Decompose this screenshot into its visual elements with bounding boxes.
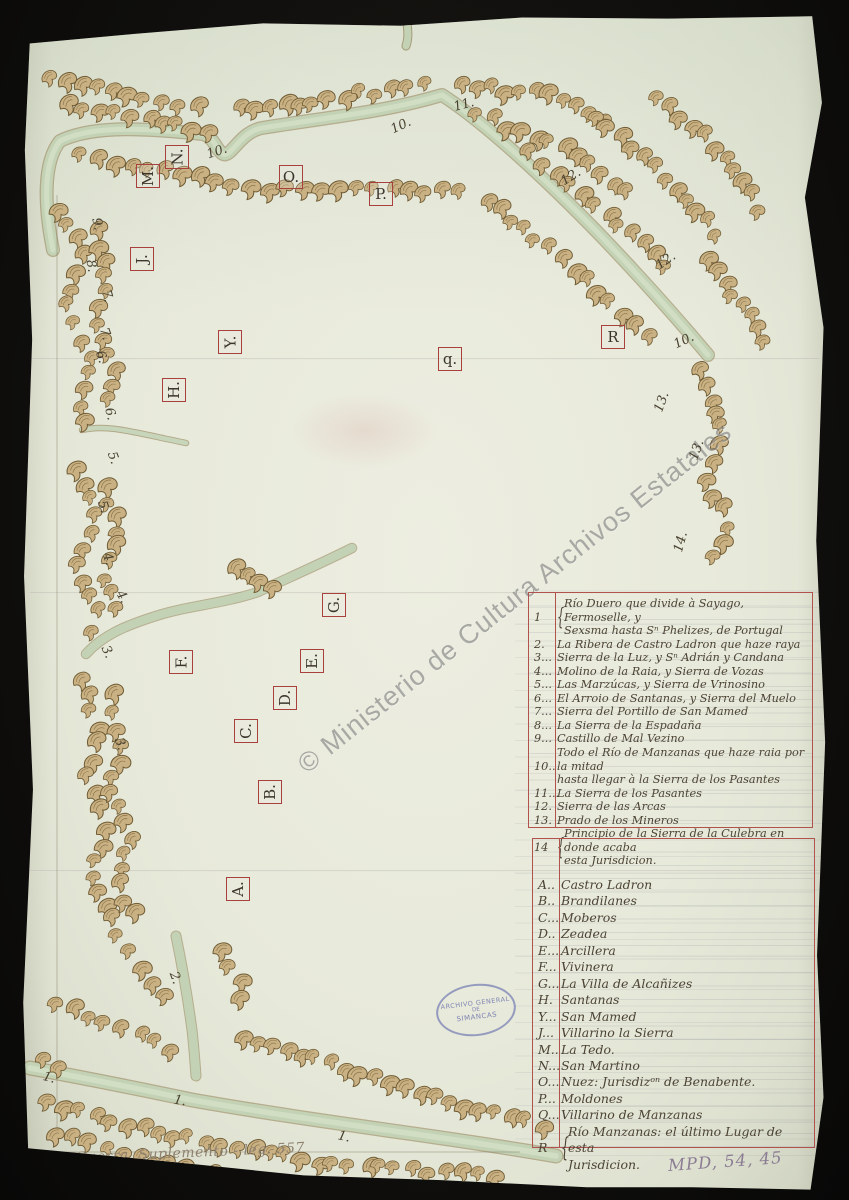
legend-item-text: Vivinera	[561, 959, 810, 975]
legend-margin-rule	[559, 839, 560, 1147]
legend-item: 13.Prado de los Mineros	[531, 814, 808, 828]
legend-item-text: La Villa de Alcañizes	[561, 976, 810, 992]
legend-item-text: Nuez: Jurisdizᵒⁿ de Benabente.	[561, 1074, 810, 1090]
legend-item-text: Arcillera	[561, 943, 810, 959]
letter-marker-E: E.	[300, 649, 324, 673]
legend-item: 4...Molino de la Raia, y Sierra de Vozas	[531, 665, 808, 679]
legend-item: J...Villarino la Sierra	[535, 1025, 810, 1041]
legend-item: 6...El Arroio de Santanas, y Sierra del …	[531, 692, 808, 706]
brace-glyph: {	[557, 603, 564, 631]
legend-item-text: Sierra de la Luz, y Sⁿ Adrián y Candana	[557, 651, 808, 665]
legend-item-text: San Martino	[561, 1058, 810, 1074]
letter-marker-F: F.	[169, 650, 193, 674]
letter-marker-H: H.	[162, 378, 186, 402]
letter-marker-G: G.	[322, 593, 346, 617]
legend-item: 10..Todo el Río de Manzanas que haze rai…	[531, 746, 808, 787]
legend-item-key: J...	[535, 1025, 561, 1041]
legend-item-text: San Mamed	[561, 1009, 810, 1025]
legend-item-key: 5...	[531, 678, 557, 692]
legend-item-key: B..	[535, 893, 561, 909]
legend-item-key: A..	[535, 877, 561, 893]
legend-item: Q...Villarino de Manzanas	[535, 1107, 810, 1123]
letter-marker-label: G.	[325, 597, 343, 613]
legend-item-line: Río Duero que divide à Sayago, Fermosell…	[564, 597, 808, 624]
legend-item-line: Todo el Río de Manzanas que haze raia po…	[557, 746, 808, 773]
legend-item-line: Villarino la Sierra	[561, 1025, 810, 1041]
legend-item: A..Castro Ladron	[535, 877, 810, 893]
stamp-line-3: SIMANCAS	[456, 1010, 497, 1023]
legend-item-text: Sierra del Portillo de San Mamed	[557, 705, 808, 719]
legend-item: H.Santanas	[535, 992, 810, 1008]
legend-item-line: La Sierra de la Espadaña	[557, 719, 808, 733]
legend-item-key: 11...	[531, 787, 557, 801]
letter-marker-q: q.	[438, 347, 462, 371]
legend-item: C...Moberos	[535, 910, 810, 926]
legend-item-text: Villarino de Manzanas	[561, 1107, 810, 1123]
legend-item-line: hasta llegar à la Sierra de los Pasantes	[557, 773, 808, 787]
legend-item: R{Río Manzanas: el último Lugar de estaJ…	[535, 1124, 810, 1173]
legend-item-text: La Sierra de la Espadaña	[557, 719, 808, 733]
legend-item-text: Castillo de Mal Vezino	[557, 732, 808, 746]
letter-marker-label: H.	[165, 381, 183, 399]
legend-item-key: 1	[531, 611, 557, 625]
letter-marker-label: C.	[237, 723, 255, 739]
legend-item-line: Vivinera	[561, 959, 810, 975]
legend-item-line: Arcillera	[561, 943, 810, 959]
legend-item-key: O...	[535, 1074, 561, 1090]
legend-item-text: Prado de los Mineros	[557, 814, 808, 828]
legend-item-key: Q...	[535, 1107, 561, 1123]
legend-item-key: 4...	[531, 665, 557, 679]
legend-item-line: Sierra de las Arcas	[557, 800, 808, 814]
scanned-map-photo: © Ministerio de Cultura Archivos Estatal…	[0, 0, 849, 1200]
legend-item: D..Zeadea	[535, 926, 810, 942]
legend-item-key: 10..	[531, 760, 557, 774]
legend-item-key: 6...	[531, 692, 557, 706]
legend-item-text: Villarino la Sierra	[561, 1025, 810, 1041]
legend-item-key: 13.	[531, 814, 557, 828]
legend-item-line: La Tedo.	[561, 1042, 810, 1058]
letter-marker-M: M.	[136, 164, 160, 188]
legend-item-text: Las Marzúcas, y Sierra de Vrinosino	[557, 678, 808, 692]
legend-item-key: D..	[535, 926, 561, 942]
brace-glyph: {	[561, 1131, 568, 1166]
legend-item-line: Sexsma hasta Sⁿ Phelizes, de Portugal	[564, 624, 808, 638]
legend-item-key: 3...	[531, 651, 557, 665]
letter-marker-label: O.	[283, 168, 299, 186]
legend-item-line: Prado de los Mineros	[557, 814, 808, 828]
letter-marker-C: C.	[234, 719, 258, 743]
legend-item-line: Zeadea	[561, 926, 810, 942]
legend-item-text: La Tedo.	[561, 1042, 810, 1058]
legend-item: N...San Martino	[535, 1058, 810, 1074]
map-sheet: © Ministerio de Cultura Archivos Estatal…	[20, 8, 830, 1192]
legend-item-line: San Mamed	[561, 1009, 810, 1025]
legend-item-text: Todo el Río de Manzanas que haze raia po…	[557, 746, 808, 787]
legend-item-key: 9...	[531, 732, 557, 746]
legend-item-text: Moldones	[561, 1091, 810, 1107]
legend-item-text: Santanas	[561, 992, 810, 1008]
legend-item-key: G...	[535, 976, 561, 992]
border-number-marker: 1.	[173, 1093, 188, 1110]
letter-marker-P: P.	[369, 182, 393, 206]
legend-item: F...Vivinera	[535, 959, 810, 975]
letter-marker-label: J.	[133, 254, 151, 264]
legend-item: 11...La Sierra de los Pasantes	[531, 787, 808, 801]
letter-marker-A: A.	[226, 877, 250, 901]
legend-item-key: F...	[535, 959, 561, 975]
legend-item-line: Moberos	[561, 910, 810, 926]
legend-item-text: Brandilanes	[561, 893, 810, 909]
legend-item-text: Sierra de las Arcas	[557, 800, 808, 814]
legend-item: P...Moldones	[535, 1091, 810, 1107]
legend-item-line: Villarino de Manzanas	[561, 1107, 810, 1123]
legend-item-line: La Villa de Alcañizes	[561, 976, 810, 992]
legend-item-line: El Arroio de Santanas, y Sierra del Muel…	[557, 692, 808, 706]
legend-item-line: Las Marzúcas, y Sierra de Vrinosino	[557, 678, 808, 692]
legend-item: 9...Castillo de Mal Vezino	[531, 732, 808, 746]
letter-marker-N: N.	[165, 145, 189, 169]
legend-item-line: San Martino	[561, 1058, 810, 1074]
letter-marker-R: R	[601, 325, 625, 349]
legend-item-line: La Ribera de Castro Ladron que haze raya	[557, 638, 808, 652]
letter-marker-label: A.	[229, 881, 247, 897]
legend-item-line: Nuez: Jurisdizᵒⁿ de Benabente.	[561, 1074, 810, 1090]
letter-marker-label: Y.	[221, 336, 239, 349]
legend-item: 3...Sierra de la Luz, y Sⁿ Adrián y Cand…	[531, 651, 808, 665]
legend-item-key: 8...	[531, 719, 557, 733]
legend-item-text: La Sierra de los Pasantes	[557, 787, 808, 801]
legend-item-line: Castillo de Mal Vezino	[557, 732, 808, 746]
legend-item-line: Brandilanes	[561, 893, 810, 909]
legend-item-text: Moberos	[561, 910, 810, 926]
letter-marker-label: E.	[303, 653, 321, 669]
letter-marker-label: M.	[139, 166, 157, 186]
legend-item-key: 12.	[531, 800, 557, 814]
legend-item: 5...Las Marzúcas, y Sierra de Vrinosino	[531, 678, 808, 692]
legend-item-key: M..	[535, 1042, 561, 1058]
letter-marker-D: D.	[273, 686, 297, 710]
letter-marker-label: R	[607, 328, 618, 346]
legend-item-line: Jurisdicion.	[568, 1157, 810, 1173]
legend-item-text: Río Duero que divide à Sayago, Fermosell…	[564, 597, 808, 638]
legend-item: Y...San Mamed	[535, 1009, 810, 1025]
legend-item-key: N...	[535, 1058, 561, 1074]
letter-marker-label: F.	[172, 656, 190, 669]
legend-item-text: Zeadea	[561, 926, 810, 942]
letter-marker-O: O.	[279, 165, 303, 189]
legend-item-key: 2.	[531, 638, 557, 652]
legend-item: E...Arcillera	[535, 943, 810, 959]
legend-item-line: Castro Ladron	[561, 877, 810, 893]
legend-item-key: 7...	[531, 705, 557, 719]
letter-marker-label: N.	[168, 149, 186, 166]
letter-marker-label: B.	[261, 784, 279, 800]
legend-item: 7...Sierra del Portillo de San Mamed	[531, 705, 808, 719]
legend-item: 2.La Ribera de Castro Ladron que haze ra…	[531, 638, 808, 652]
legend-item-text: Castro Ladron	[561, 877, 810, 893]
legend-item: B..Brandilanes	[535, 893, 810, 909]
letter-marker-label: P.	[375, 185, 387, 203]
legend-item: M..La Tedo.	[535, 1042, 810, 1058]
legend-item: G...La Villa de Alcañizes	[535, 976, 810, 992]
legend-item-key: P...	[535, 1091, 561, 1107]
legend-item-line: Santanas	[561, 992, 810, 1008]
legend-lettered-box: A..Castro LadronB..BrandilanesC...Mobero…	[532, 838, 815, 1148]
legend-item-line: Moldones	[561, 1091, 810, 1107]
legend-item-key: E...	[535, 943, 561, 959]
legend-item-line: Río Manzanas: el último Lugar de esta	[568, 1124, 810, 1157]
legend-item-key: C...	[535, 910, 561, 926]
legend-item-line: Sierra de la Luz, y Sⁿ Adrián y Candana	[557, 651, 808, 665]
legend-item-key: H.	[535, 992, 561, 1008]
letter-marker-J: J.	[130, 247, 154, 271]
legend-numbered-box: 1{Río Duero que divide à Sayago, Fermose…	[528, 592, 813, 828]
letter-marker-label: q.	[443, 350, 457, 368]
legend-item-key: R	[535, 1140, 561, 1156]
legend-item: O...Nuez: Jurisdizᵒⁿ de Benabente.	[535, 1074, 810, 1090]
legend-item: 12.Sierra de las Arcas	[531, 800, 808, 814]
legend-item-line: Sierra del Portillo de San Mamed	[557, 705, 808, 719]
legend-item-line: La Sierra de los Pasantes	[557, 787, 808, 801]
legend-item-line: Molino de la Raia, y Sierra de Vozas	[557, 665, 808, 679]
legend-item-text: Molino de la Raia, y Sierra de Vozas	[557, 665, 808, 679]
legend-item: 1{Río Duero que divide à Sayago, Fermose…	[531, 597, 808, 638]
letter-marker-label: D.	[276, 690, 294, 706]
legend-item-text: Río Manzanas: el último Lugar de estaJur…	[568, 1124, 810, 1173]
legend-item-text: El Arroio de Santanas, y Sierra del Muel…	[557, 692, 808, 706]
border-number-marker: 8.	[83, 259, 100, 274]
letter-marker-B: B.	[258, 780, 282, 804]
legend-item-key: Y...	[535, 1009, 561, 1025]
legend-item: 8...La Sierra de la Espadaña	[531, 719, 808, 733]
legend-item-text: La Ribera de Castro Ladron que haze raya	[557, 638, 808, 652]
legend-margin-rule	[555, 593, 556, 827]
letter-marker-Y: Y.	[218, 330, 242, 354]
